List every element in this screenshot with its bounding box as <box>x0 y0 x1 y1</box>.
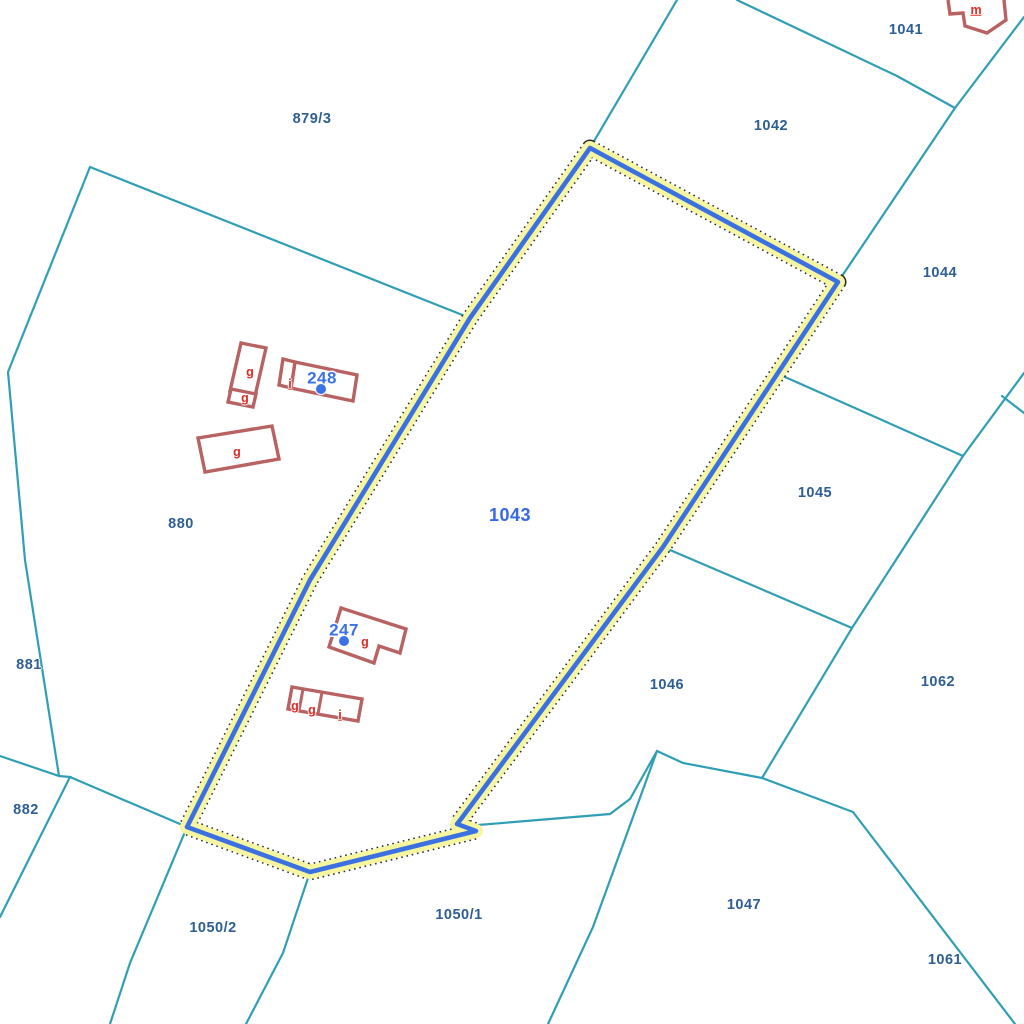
building-footprint <box>198 426 279 472</box>
parcel-boundary-line <box>0 776 70 917</box>
parcel-boundary-line <box>663 547 852 628</box>
parcel-boundary-line <box>70 777 187 827</box>
parcel-boundary-line <box>0 756 59 776</box>
parcel-boundary-line <box>776 373 963 456</box>
parcel-boundary-line <box>110 827 187 1024</box>
parcel-boundary-line <box>90 167 470 318</box>
parcel-boundary-line <box>590 0 677 148</box>
parcel-boundary-line <box>657 751 1015 1024</box>
selected-parcel-outline[interactable] <box>187 148 838 872</box>
parcel-boundary-line <box>246 872 310 1024</box>
parcel-boundary-line <box>762 373 1024 778</box>
building-footprint <box>291 362 357 401</box>
building-footprint <box>279 359 295 388</box>
building-footprint <box>329 608 406 663</box>
map-svg <box>0 0 1024 1024</box>
building-footprint <box>948 0 1006 33</box>
building-footprint <box>230 343 266 396</box>
building-footprint <box>228 389 256 407</box>
parcel-boundary-line <box>737 0 955 108</box>
cadastral-map-canvas[interactable]: 879/310411042104410451046106288088188210… <box>0 0 1024 1024</box>
parcel-boundary-line <box>548 751 657 1024</box>
parcel-boundary-line <box>8 167 90 776</box>
parcel-boundary-line <box>838 108 955 282</box>
parcel-boundary-line <box>1002 396 1024 413</box>
